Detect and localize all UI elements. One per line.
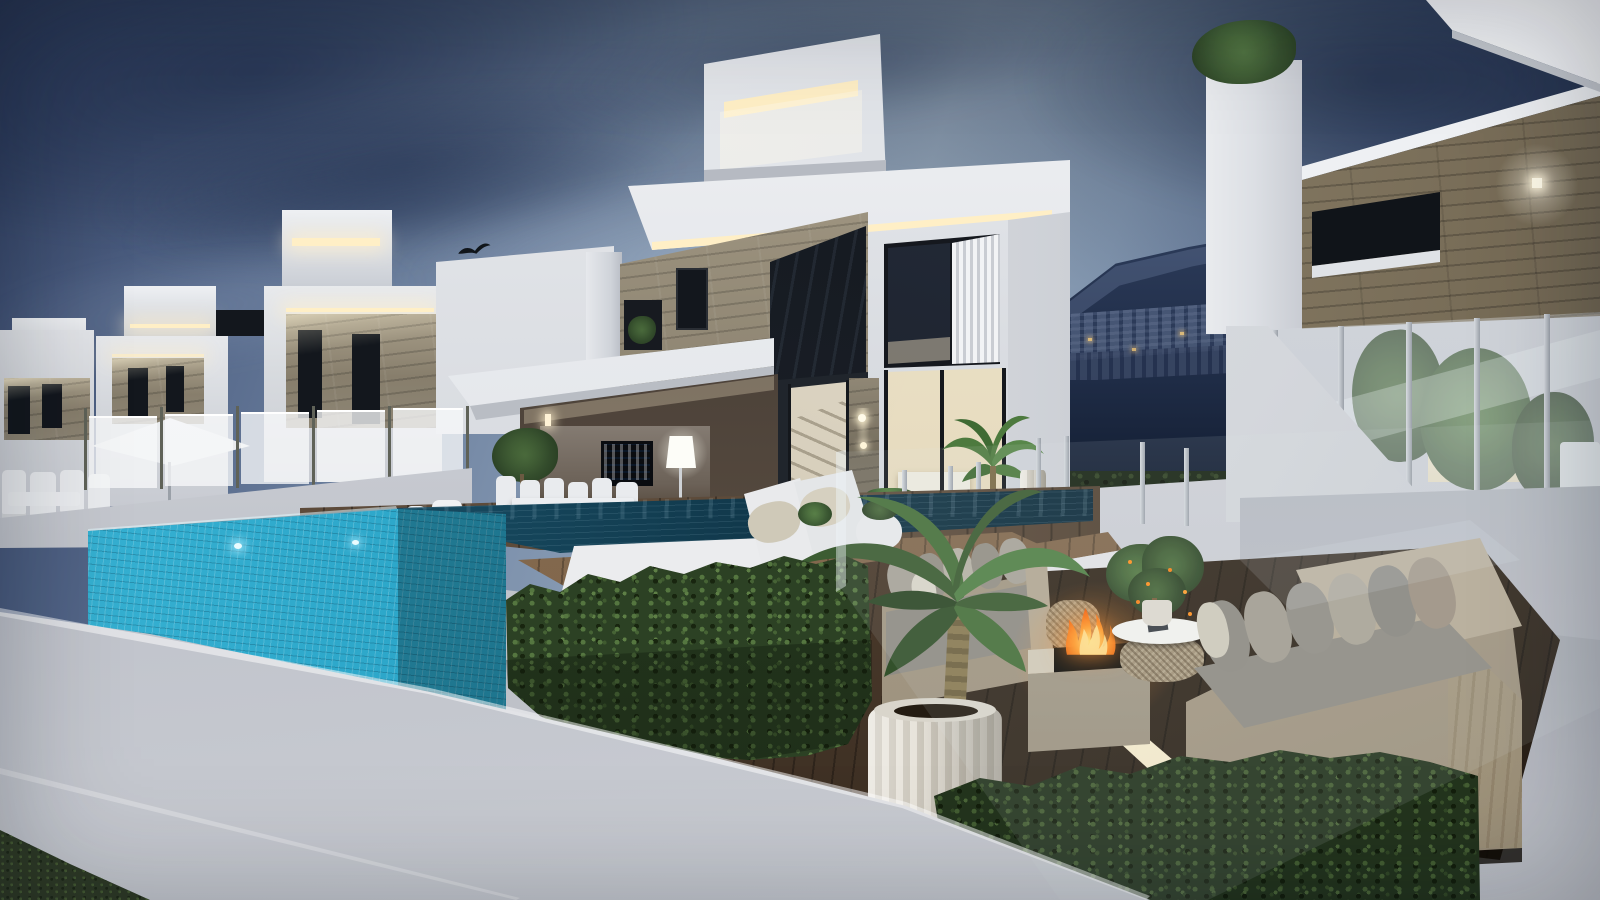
- stone-facade-window-small: [676, 268, 708, 330]
- window-slit: [216, 310, 264, 336]
- wall-sconce: [545, 414, 551, 426]
- glass-panel: [165, 414, 233, 486]
- villa-left-2-stone-band: [112, 358, 204, 424]
- deck-potted-tree-foliage: [492, 428, 558, 482]
- pool-underwater-light: [234, 543, 242, 549]
- villa-left-2-led-strip: [130, 324, 210, 328]
- lit-window-dot: [1180, 332, 1184, 335]
- chimney-pillar: [1206, 60, 1302, 334]
- patio-table: [8, 492, 80, 506]
- wood-wall-sconce: [1532, 178, 1542, 188]
- villa-left-1-stone-band: [4, 378, 90, 440]
- villa-left-2-roofbox: [124, 286, 216, 336]
- fence-post: [236, 406, 239, 488]
- column-downlight: [860, 442, 867, 449]
- lit-window-dot: [1132, 348, 1136, 351]
- villa-dusk-render: [0, 0, 1600, 900]
- glass-panel: [89, 416, 157, 488]
- flying-bird: [455, 238, 493, 264]
- pool-underwater-light: [352, 540, 359, 545]
- bird-silhouette-svg: [455, 238, 493, 262]
- column-downlight: [858, 414, 866, 422]
- villa-left-2-underroof-led: [112, 354, 204, 357]
- floor-lamp-shade: [666, 436, 696, 468]
- villa-left-3-led-cove: [292, 238, 380, 246]
- villa-left-3-underroof-led: [286, 308, 434, 312]
- lit-window-dot: [1088, 338, 1092, 341]
- villa-left-3-stone-band: [286, 314, 436, 428]
- villa-left-3-roofbox: [282, 210, 392, 288]
- tv-screen: [604, 444, 650, 480]
